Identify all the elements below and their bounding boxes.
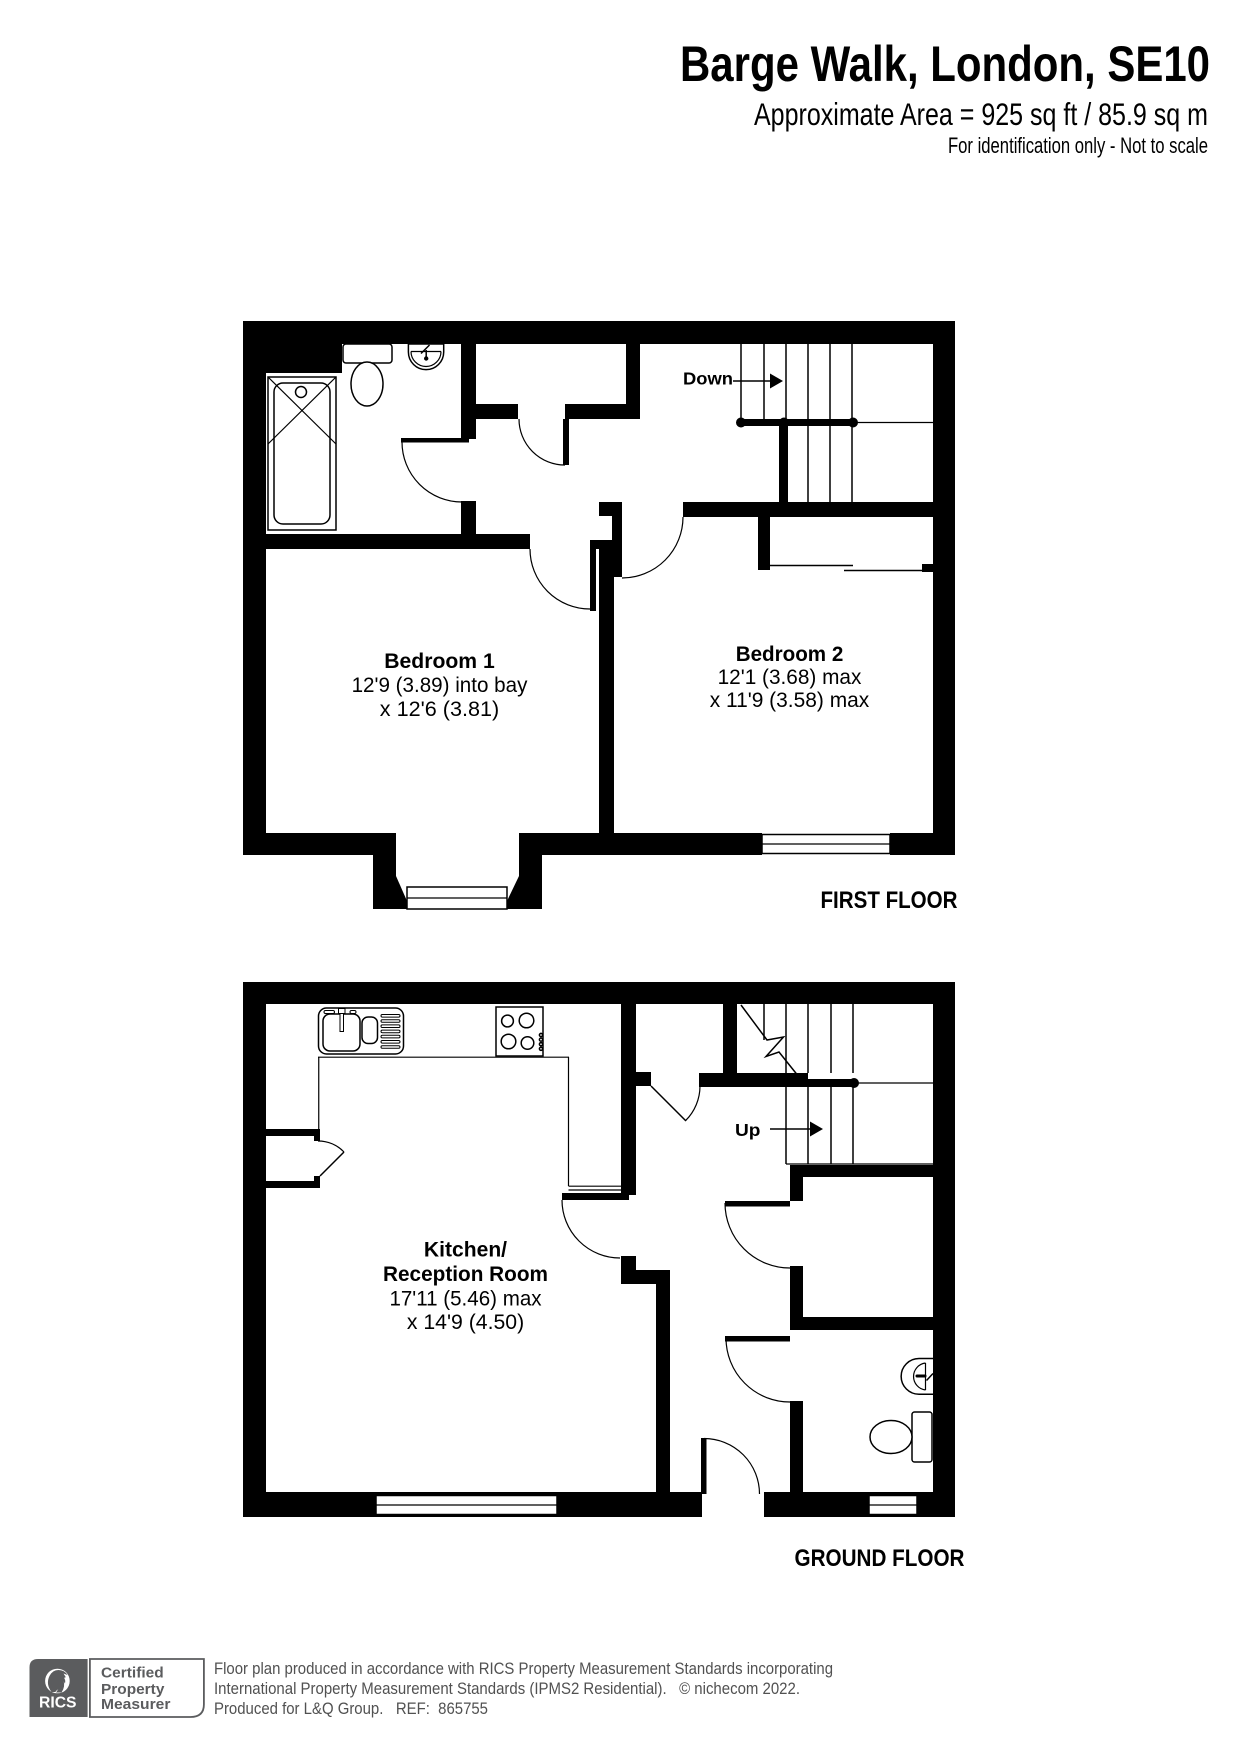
svg-text:Approximate Area = 925 sq ft /: Approximate Area = 925 sq ft / 85.9 sq m [754,96,1208,132]
svg-text:Barge Walk, London, SE10: Barge Walk, London, SE10 [680,36,1210,92]
svg-text:Bedroom 1: Bedroom 1 [384,650,495,673]
svg-text:Bedroom 2: Bedroom 2 [736,643,844,666]
svg-text:Measurer: Measurer [101,1697,171,1713]
svg-text:International Property Measure: International Property Measurement Stand… [214,1680,800,1698]
svg-text:x 14'9 (4.50): x 14'9 (4.50) [407,1311,524,1334]
svg-text:Produced for L&Q Group. REF:: Produced for L&Q Group. REF: 865755 [214,1700,488,1718]
svg-text:Floor plan produced in accorda: Floor plan produced in accordance with R… [214,1660,833,1678]
svg-text:17'11 (5.46) max: 17'11 (5.46) max [389,1288,542,1311]
svg-text:x 12'6 (3.81): x 12'6 (3.81) [380,698,499,721]
svg-text:FIRST FLOOR: FIRST FLOOR [821,887,958,914]
svg-text:Up: Up [735,1120,761,1140]
svg-text:x 11'9 (3.58) max: x 11'9 (3.58) max [710,689,870,712]
svg-text:Down: Down [683,369,733,389]
svg-text:RICS: RICS [39,1695,77,1712]
svg-text:Reception Room: Reception Room [383,1263,548,1286]
svg-text:12'9 (3.89) into bay: 12'9 (3.89) into bay [352,674,528,697]
svg-text:For identification only - Not: For identification only - Not to scale [948,133,1208,158]
svg-text:Kitchen/: Kitchen/ [424,1239,507,1262]
svg-text:12'1 (3.68) max: 12'1 (3.68) max [718,666,862,689]
svg-text:GROUND FLOOR: GROUND FLOOR [795,1545,965,1572]
svg-text:Property: Property [101,1682,164,1698]
svg-text:Certified: Certified [101,1666,164,1682]
